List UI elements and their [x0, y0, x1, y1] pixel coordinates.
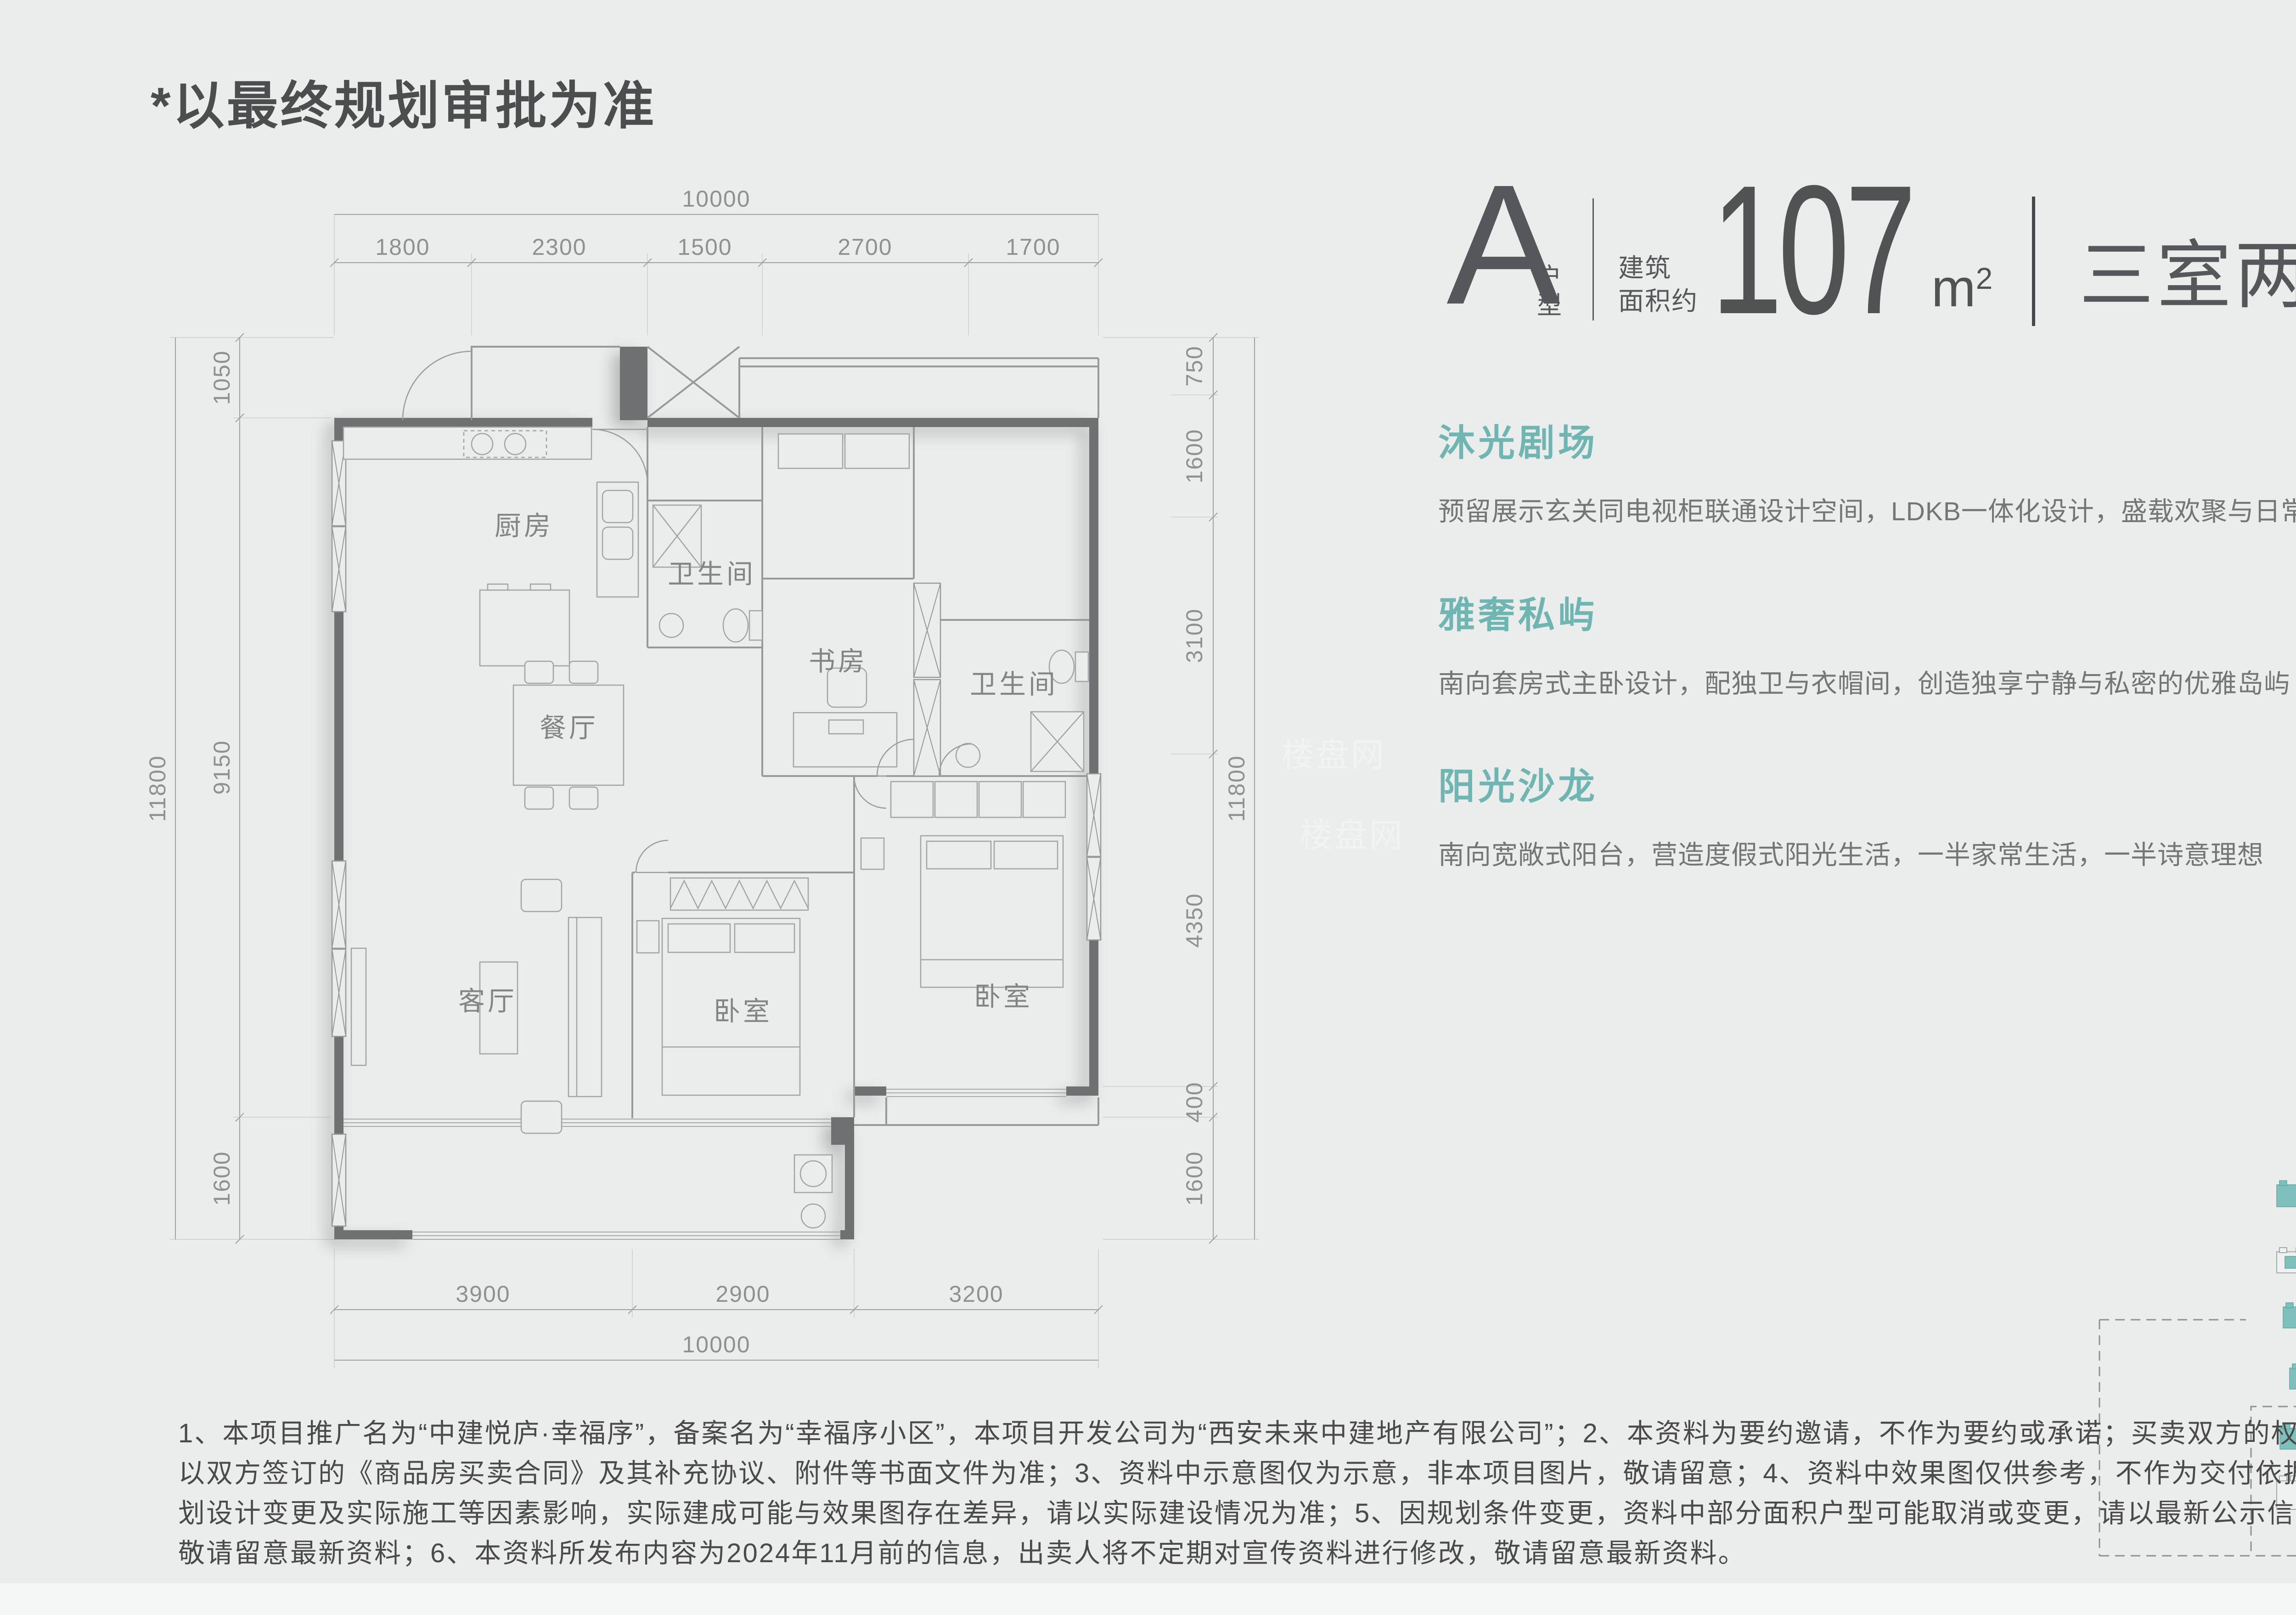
room-label-living: 客厅: [458, 986, 517, 1016]
area-value: 107: [1711, 158, 1912, 342]
room-label-bedroom2: 卧室: [974, 982, 1033, 1012]
floorplan-poster: { "page": { "note": "*以最终规划审批为准", "water…: [0, 0, 2296, 1615]
dim-bottom-1: 3900: [456, 1281, 510, 1307]
feature-title-1: 沐光剧场: [1438, 413, 1598, 467]
dimension-chains: 10000 1800 2300 1500 2700 1700 3900 2900…: [145, 186, 1255, 1360]
disclaimer-line-2: 以双方签订的《商品房买卖合同》及其补充协议、附件等书面文件为准；3、资料中示意图…: [178, 1453, 2296, 1493]
room-label-kitchen: 厨房: [495, 511, 553, 541]
dim-top-total: 10000: [682, 186, 750, 212]
footer-band: [0, 1583, 2296, 1615]
unit-type-label: 户型: [1533, 264, 1560, 321]
area-unit: m2: [1931, 257, 1992, 319]
dim-left-2: 9150: [209, 740, 235, 794]
feature-title-3: 阳光沙龙: [1438, 757, 1598, 810]
doors: [403, 351, 971, 872]
approval-note: *以最终规划审批为准: [151, 64, 657, 139]
area-unit-sup: 2: [1976, 261, 1993, 295]
furniture: [343, 427, 1088, 1228]
dim-bottom-total: 10000: [682, 1332, 750, 1357]
dim-left-1: 1050: [209, 350, 235, 405]
floor-plan: 10000 1800 2300 1500 2700 1700 3900 2900…: [115, 184, 1378, 1424]
area-label-line2: 面积约: [1618, 285, 1698, 318]
room-label-study: 书房: [809, 647, 867, 676]
dim-right-3: 3100: [1182, 608, 1207, 663]
room-label-bedroom1: 卧室: [714, 996, 772, 1026]
dim-left-total: 11800: [145, 755, 170, 822]
dim-top-4: 2700: [838, 234, 892, 260]
layout-description: 三室两厅两卫: [2079, 215, 2296, 323]
header-divider-thin: [1593, 198, 1594, 321]
disclaimer-line-3: 划设计变更及实际施工等因素影响，实际建成可能与效果图存在差异，请以实际建设情况为…: [178, 1493, 2296, 1533]
dim-right-total: 11800: [1224, 755, 1249, 822]
disclaimer-line-4: 敬请留意最新资料；6、本资料所发布内容为2024年11月前的信息，出卖人将不定期…: [178, 1533, 2296, 1573]
dim-top-1: 1800: [375, 234, 430, 260]
dim-top-3: 1500: [677, 234, 732, 260]
hatched-wall-segments: [332, 441, 1101, 1226]
room-label-bath1: 卫生间: [668, 559, 756, 589]
area-unit-m: m: [1931, 258, 1976, 318]
feature-desc-1: 预留展示玄关同电视柜联通设计空间，LDKB一体化设计，盛载欢聚与日常的情感交互中…: [1438, 490, 2296, 528]
feature-title-2: 雅奢私屿: [1438, 585, 1598, 639]
feature-desc-2: 南向套房式主卧设计，配独卫与衣帽间，创造独享宁静与私密的优雅岛屿: [1438, 663, 2290, 700]
interior-walls: [472, 347, 1098, 1125]
windows: [343, 1089, 1066, 1239]
disclaimer: 1、本项目推广名为“中建悦庐·幸福序”，备案名为“幸福序小区”，本项目开发公司为…: [178, 1413, 2296, 1573]
watermark: 楼盘网: [1300, 808, 1404, 856]
room-label-dining: 餐厅: [540, 713, 598, 743]
area-label-line1: 建筑: [1618, 252, 1698, 285]
disclaimer-line-1: 1、本项目推广名为“中建悦庐·幸福序”，备案名为“幸福序小区”，本项目开发公司为…: [178, 1413, 2296, 1453]
dim-right-6: 1600: [1182, 1151, 1207, 1205]
dim-right-4: 4350: [1182, 893, 1207, 947]
dim-bottom-3: 3200: [949, 1281, 1003, 1307]
dimension-extension-lines: [170, 214, 1259, 1368]
dim-right-1: 750: [1182, 345, 1207, 386]
dim-top-5: 1700: [1006, 234, 1060, 260]
dim-right-2: 1600: [1182, 428, 1207, 483]
room-label-bath2: 卫生间: [970, 670, 1058, 699]
dim-right-5: 400: [1182, 1081, 1207, 1122]
dim-bottom-2: 2900: [715, 1281, 770, 1307]
feature-desc-3: 南向宽敞式阳台，营造度假式阳光生活，一半家常生活，一半诗意理想: [1438, 834, 2264, 872]
header-divider-thick: [2032, 197, 2035, 326]
dim-left-3: 1600: [209, 1151, 235, 1205]
watermark: 楼盘网: [1281, 728, 1386, 776]
walls: [334, 347, 1098, 1239]
area-label: 建筑 面积约: [1618, 252, 1698, 318]
dim-top-2: 2300: [532, 234, 586, 260]
